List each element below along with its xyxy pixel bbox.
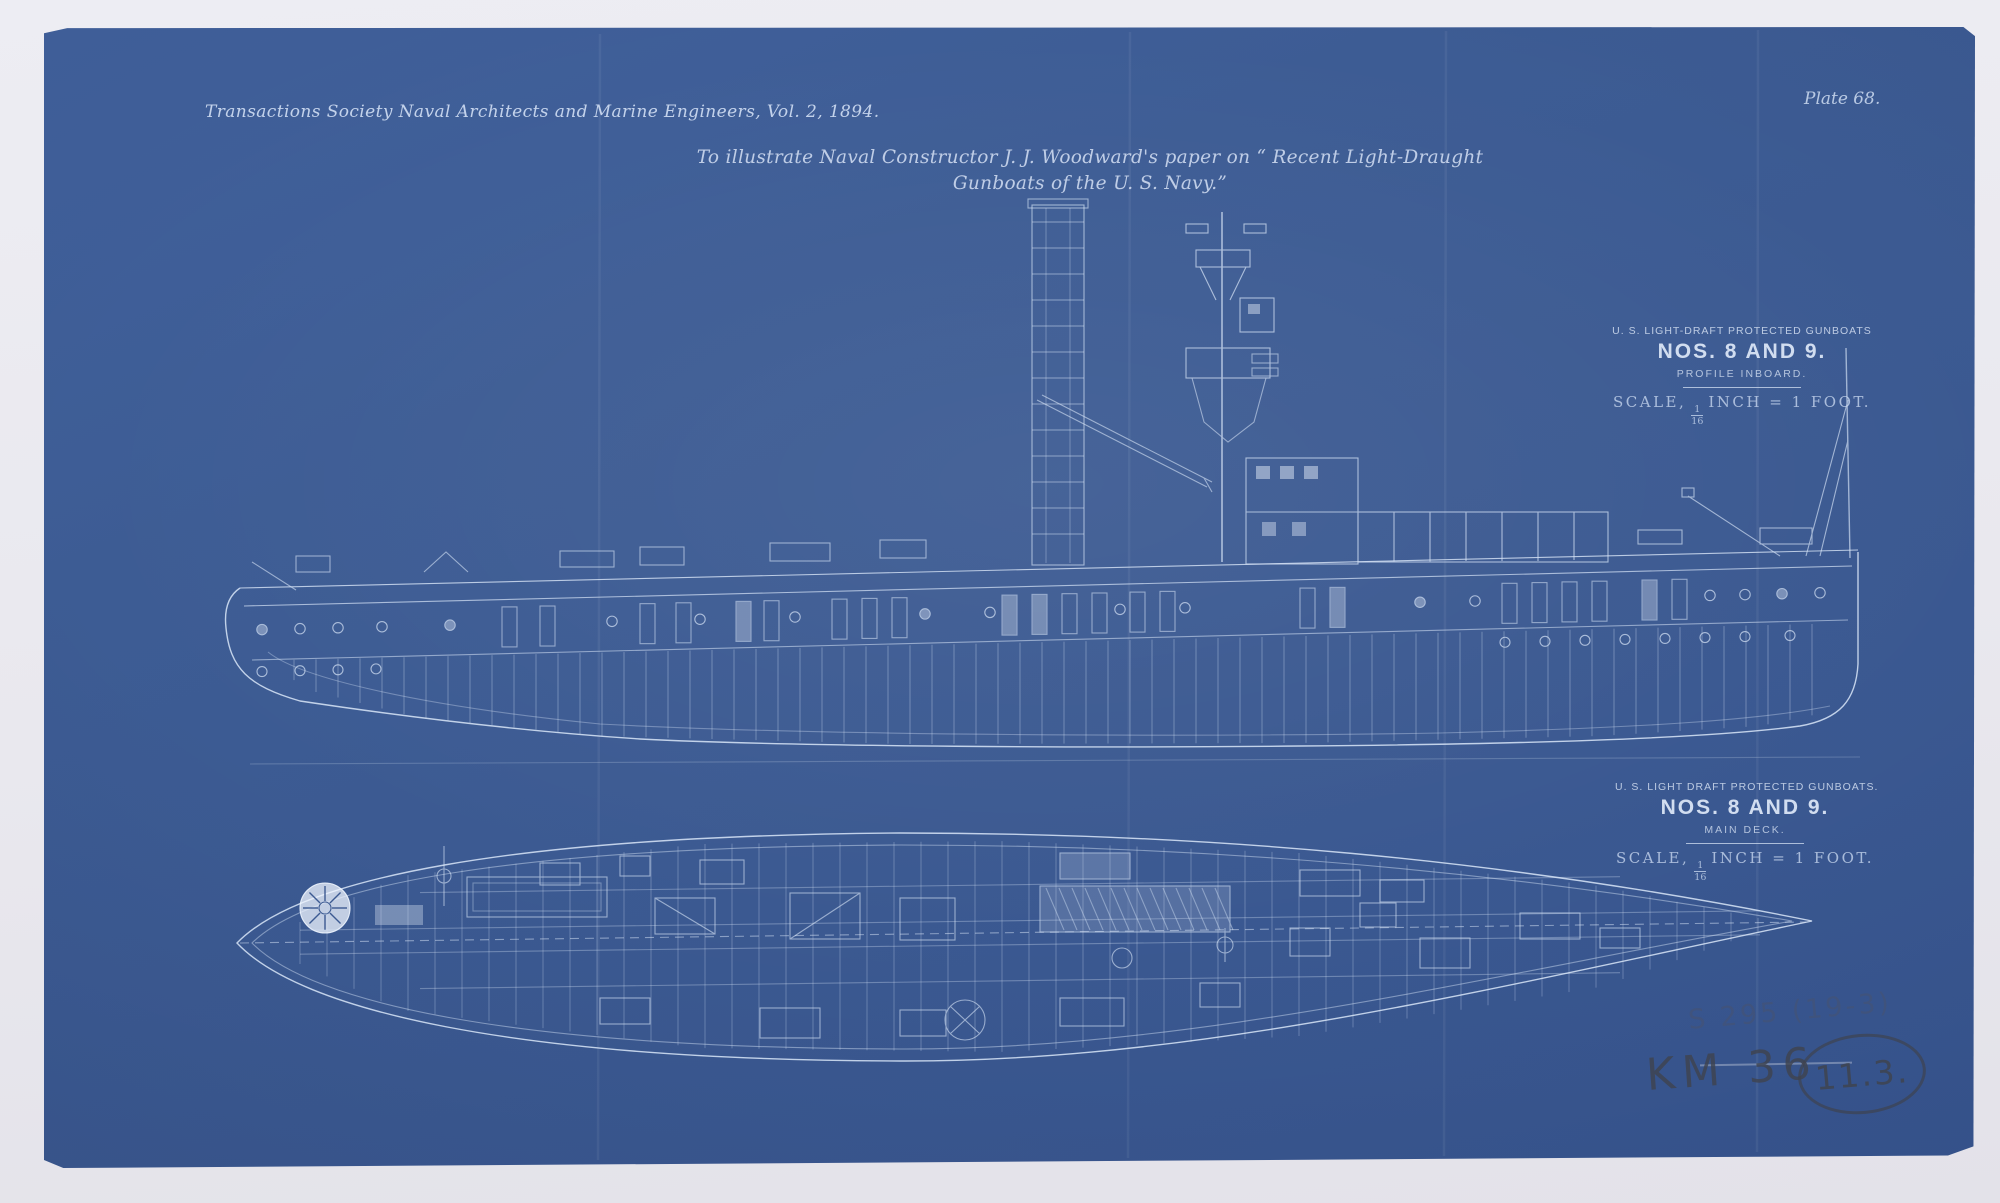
blueprint-sheet: [44, 27, 1975, 1168]
deck-block-view-name: MAIN DECK.: [1615, 824, 1875, 836]
deck-block-series: U. S. LIGHT DRAFT PROTECTED GUNBOATS.: [1615, 781, 1875, 793]
profile-block-series: U. S. LIGHT-DRAFT PROTECTED GUNBOATS: [1612, 325, 1872, 337]
caption-line-1: To illustrate Naval Constructor J. J. Wo…: [640, 145, 1540, 171]
title-rule: [1686, 843, 1804, 844]
caption-line-2: Gunboats of the U. S. Navy.”: [640, 171, 1540, 197]
scanned-blueprint-page: { "colors":{"paper":"#e9e8ee","blueprint…: [0, 0, 2000, 1203]
profile-scale-note: SCALE,116INCH = 1 FOOT.: [1612, 393, 1872, 426]
journal-citation: Transactions Society Naval Architects an…: [205, 102, 880, 122]
title-rule: [1683, 387, 1801, 388]
deck-block-ship-numbers: NOS. 8 AND 9.: [1615, 796, 1875, 820]
caption: To illustrate Naval Constructor J. J. Wo…: [640, 145, 1540, 197]
plate-number: Plate 68.: [1804, 89, 1880, 109]
profile-block-ship-numbers: NOS. 8 AND 9.: [1612, 340, 1872, 364]
deck-title-block: U. S. LIGHT DRAFT PROTECTED GUNBOATS. NO…: [1615, 781, 1875, 882]
profile-block-view-name: PROFILE INBOARD.: [1612, 368, 1872, 380]
profile-title-block: U. S. LIGHT-DRAFT PROTECTED GUNBOATS NOS…: [1612, 325, 1872, 426]
deck-scale-note: SCALE,116INCH = 1 FOOT.: [1615, 849, 1875, 882]
